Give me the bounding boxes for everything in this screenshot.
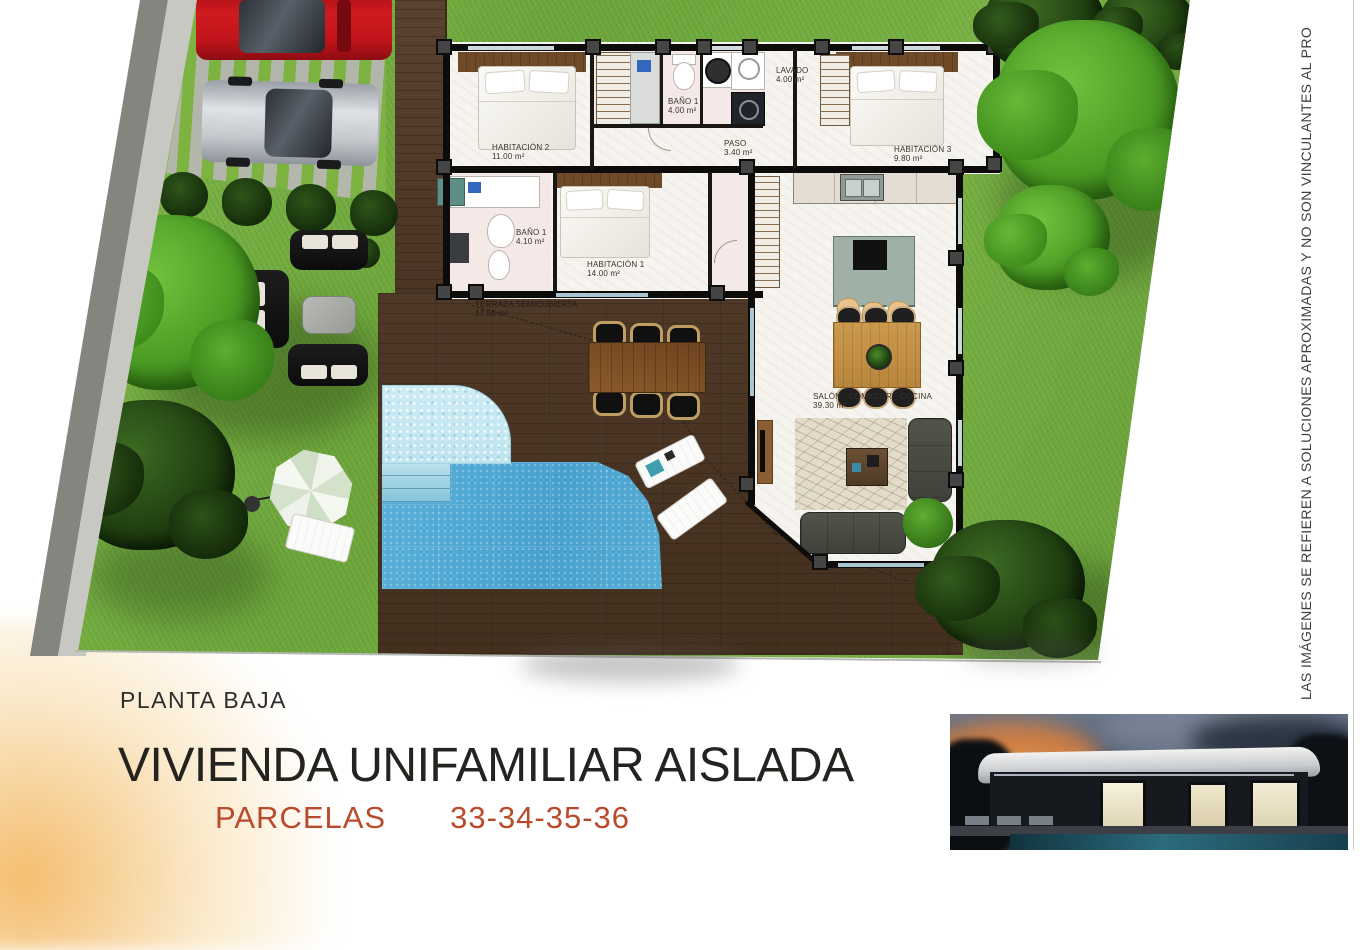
page-title: VIVIENDA UNIFAMILIAR AISLADA: [118, 738, 854, 793]
wall-pier: [709, 285, 725, 301]
sink-bowl: [845, 179, 862, 197]
outdoor-chair: [667, 393, 700, 420]
window: [958, 198, 962, 244]
parcel-plot: HABITACIÓN 211.00 m² BAÑO 14.00 m² LAVAD…: [0, 0, 1360, 668]
wardrobe: [752, 176, 780, 288]
car-windshield: [239, 0, 325, 53]
lounger-item: [664, 450, 676, 461]
partition: [700, 48, 703, 126]
wall-pier: [948, 472, 964, 488]
table-item: [867, 455, 879, 467]
room-label-habitacion-1: HABITACIÓN 114.00 m²: [587, 260, 644, 278]
tree: [995, 20, 1180, 200]
wall-pier: [436, 39, 452, 55]
wall-pier: [986, 156, 1002, 172]
roof-led-strip: [994, 774, 1294, 776]
room-label-habitacion-2: HABITACIÓN 211.00 m²: [492, 143, 549, 161]
page-border-line: [1353, 0, 1354, 850]
duvet-fold: [851, 99, 943, 100]
wall-pier: [696, 39, 712, 55]
room-label-paso: PASO3.40 m²: [724, 139, 753, 157]
wardrobe: [596, 52, 632, 126]
wall-pier: [468, 284, 484, 300]
toilet: [487, 214, 515, 248]
outdoor-chair: [593, 389, 626, 416]
pillow: [898, 70, 937, 93]
room-label-salon: SALÓN - COMEDOR - COCINA39.30 m²: [813, 392, 932, 410]
car-wheel: [225, 157, 249, 167]
kitchen-island: [833, 236, 915, 307]
sofa: [800, 512, 906, 554]
cushion: [332, 235, 358, 249]
wall-pier: [888, 39, 904, 55]
partition: [708, 172, 712, 291]
duvet-fold: [479, 101, 575, 102]
sliding-glass-door: [556, 293, 648, 297]
wall-pier: [812, 554, 828, 570]
corridor-floor: [712, 172, 748, 291]
shower-head: [637, 60, 651, 72]
table-centerpiece-plant: [866, 344, 892, 370]
cushion: [302, 235, 328, 249]
laundry-sink: [738, 58, 760, 80]
wall-pier: [742, 39, 758, 55]
partition: [553, 172, 557, 291]
cushion: [331, 365, 357, 379]
room-label-terraza: TERRAZA SEMICUBIERTA17.60 m²: [475, 300, 577, 318]
room-label-bano-1: BAÑO 14.10 m²: [516, 228, 547, 246]
bush: [222, 178, 272, 226]
garden-table: [302, 296, 356, 334]
window: [958, 308, 962, 354]
toilet: [673, 62, 695, 90]
wall-pier: [436, 284, 452, 300]
room-label-habitacion-3: HABITACIÓN 39.80 m²: [894, 145, 951, 163]
pillow: [566, 189, 604, 211]
car-wheel: [317, 160, 341, 170]
pool-steps: [382, 462, 451, 502]
washing-machine: [731, 92, 765, 126]
tv: [760, 430, 765, 472]
garden-sofa: [288, 344, 368, 386]
partition: [590, 124, 763, 128]
lit-window: [1188, 782, 1228, 832]
coffee-table: [846, 448, 888, 486]
bidet: [488, 250, 510, 280]
dark-tree: [930, 520, 1085, 650]
duvet-fold: [561, 217, 649, 218]
sink-bowl: [863, 179, 880, 197]
bathroom-unit: [449, 233, 469, 263]
room-label-lavado: LAVADO4.00 m²: [776, 66, 808, 84]
pillow: [484, 70, 525, 95]
wardrobe: [820, 54, 850, 126]
garden-lounger: [285, 513, 356, 563]
loungers-silhouette: [965, 816, 1055, 825]
washer-door: [739, 100, 759, 120]
outdoor-dining-table: [588, 342, 706, 393]
parcels-line: PARCELAS 33-34-35-36: [215, 800, 630, 836]
window: [958, 420, 962, 466]
lit-window: [1100, 780, 1146, 832]
planter-unit: [437, 178, 465, 206]
window: [468, 46, 554, 50]
tree: [995, 185, 1110, 290]
table-item: [852, 463, 861, 472]
car-wheel: [319, 79, 343, 89]
bed-habitacion-2: [478, 66, 576, 150]
red-car: [196, 0, 392, 60]
pillow: [856, 70, 895, 94]
bush: [160, 172, 208, 218]
outdoor-chair: [630, 391, 663, 418]
wall-pier: [739, 159, 755, 175]
wall-pier: [739, 476, 755, 492]
dining-table: [833, 322, 921, 388]
bed-habitacion-1: [560, 186, 650, 258]
garden-sofa: [290, 230, 368, 270]
car-spoiler: [337, 0, 351, 52]
car-wheel: [228, 76, 252, 86]
edge-shadow: [960, 640, 1100, 666]
faucet: [468, 182, 481, 193]
partition: [590, 48, 594, 170]
sofa: [908, 418, 952, 502]
wall-pier: [655, 39, 671, 55]
wall-pier: [948, 250, 964, 266]
sliding-glass-door: [838, 563, 924, 567]
floor-label: PLANTA BAJA: [120, 687, 287, 714]
sliding-glass-door: [750, 308, 754, 396]
wall-pier: [814, 39, 830, 55]
parcels-label: PARCELAS: [215, 800, 386, 836]
edge-shadow: [520, 648, 740, 682]
towel: [645, 459, 664, 477]
pillow: [528, 70, 569, 94]
partition: [660, 48, 663, 126]
car-cabin-glass: [264, 89, 333, 158]
parcels-numbers: 33-34-35-36: [450, 800, 630, 836]
kitchen-sink: [840, 174, 884, 201]
pillow: [606, 189, 644, 212]
cooktop: [853, 240, 887, 270]
round-sink: [705, 58, 731, 84]
wall-pier: [436, 159, 452, 175]
wall-pier: [585, 39, 601, 55]
side-disclaimer-text: LAS IMÁGENES SE REFIEREN A SOLUCIONES AP…: [1298, 0, 1332, 700]
pool-reflection: [1010, 834, 1348, 850]
bush: [286, 184, 336, 232]
silver-car: [201, 80, 379, 167]
page: { "page": { "footer": { "floor_label": "…: [0, 0, 1360, 850]
cushion: [301, 365, 327, 379]
wall: [443, 166, 1000, 173]
bed-habitacion-3: [850, 66, 944, 146]
site-plan: HABITACIÓN 211.00 m² BAÑO 14.00 m² LAVAD…: [0, 0, 1360, 668]
wall-pier: [948, 360, 964, 376]
villa-night-render: [950, 714, 1348, 850]
room-label-bano-1-superior: BAÑO 14.00 m²: [668, 97, 699, 115]
